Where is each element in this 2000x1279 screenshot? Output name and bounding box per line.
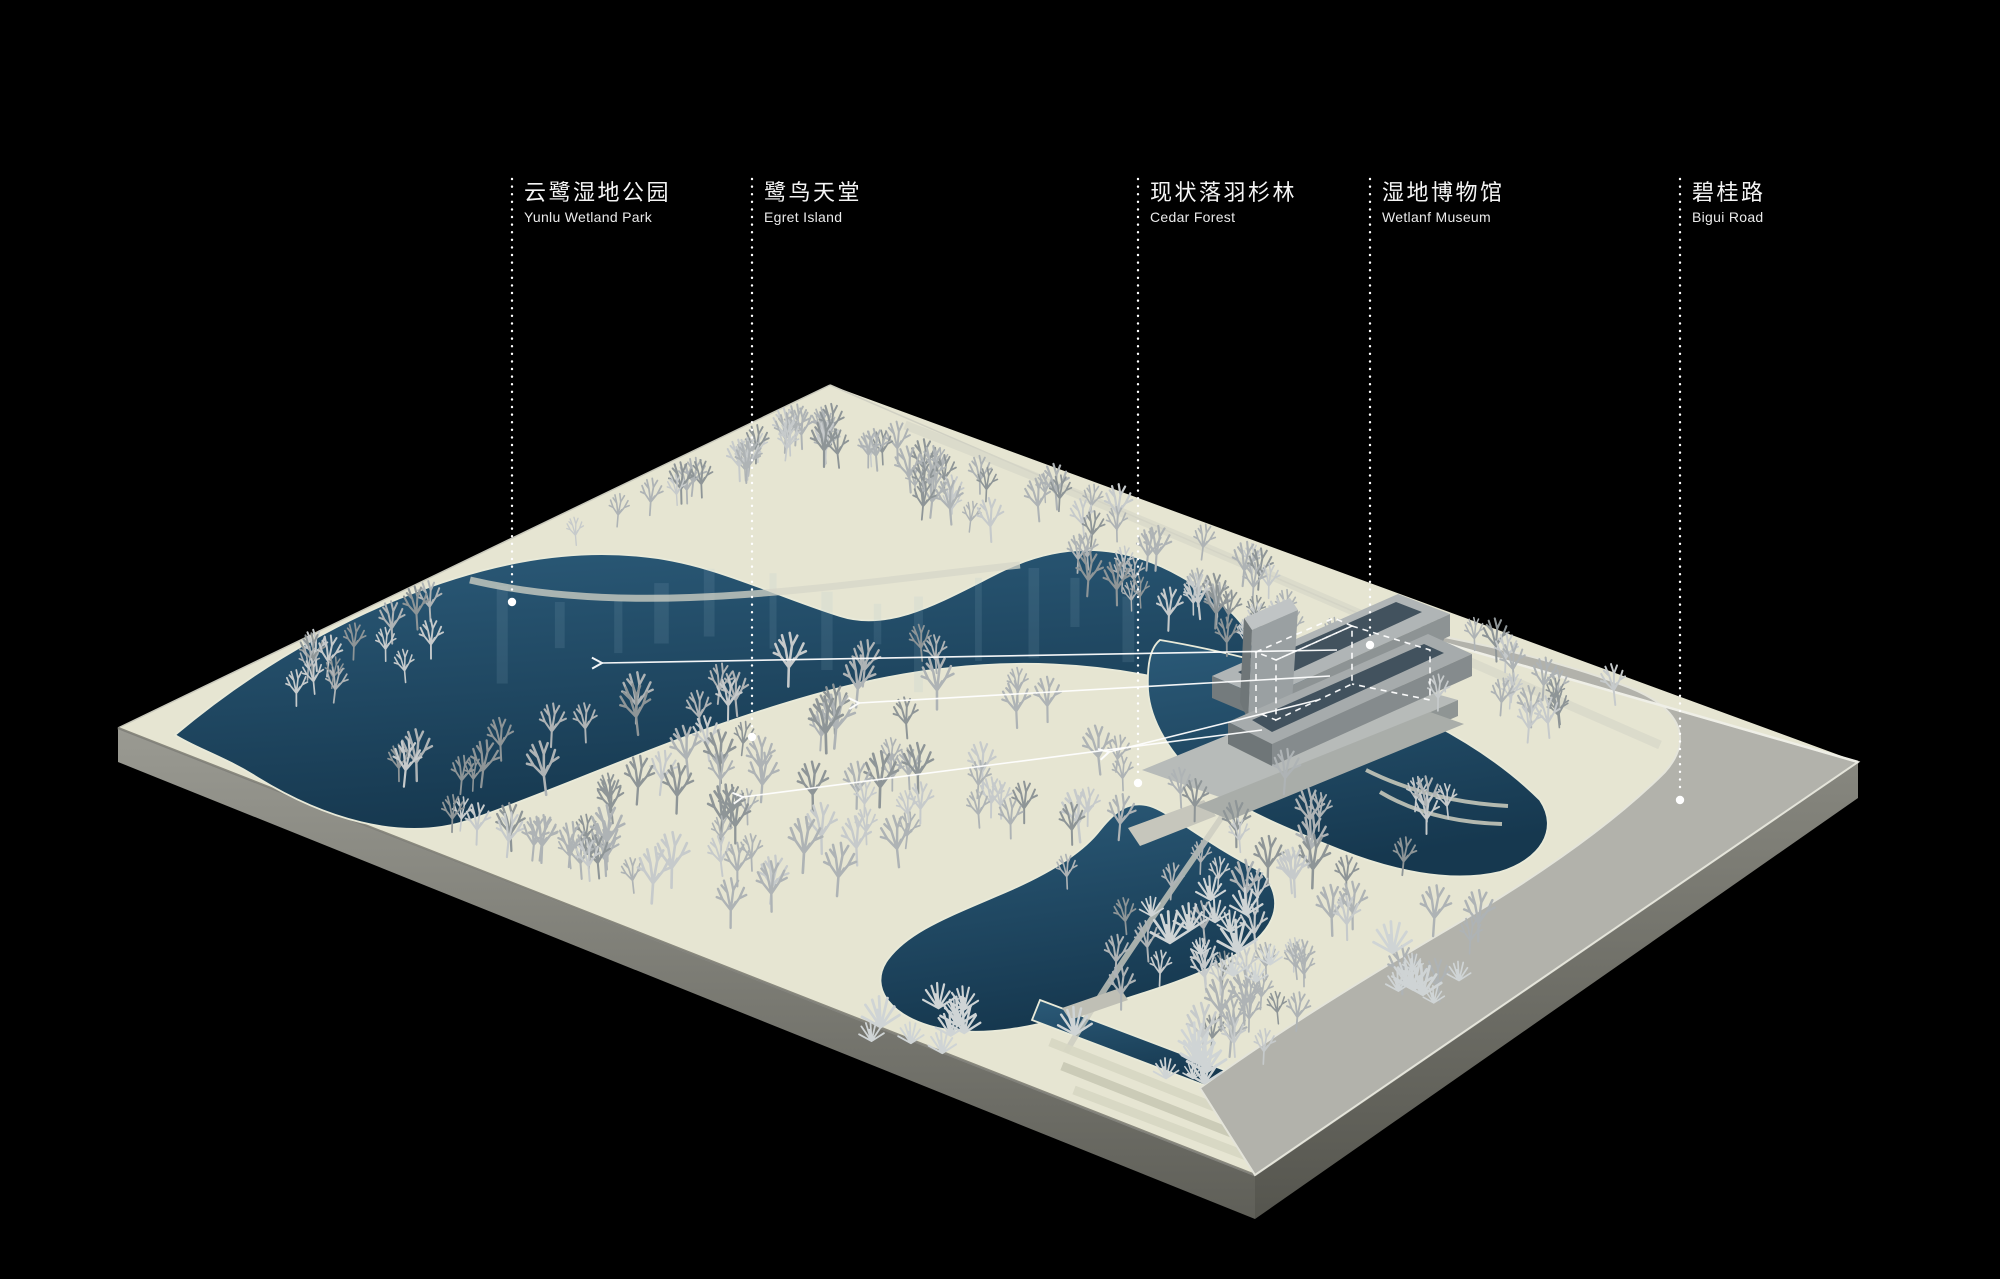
label-cedar-forest: 现状落羽杉林 Cedar Forest bbox=[1150, 181, 1297, 225]
label-egret-island: 鹭鸟天堂 Egret Island bbox=[764, 181, 862, 225]
label-bigui-road: 碧桂路 Bigui Road bbox=[1692, 181, 1766, 225]
label-en: Yunlu Wetland Park bbox=[524, 209, 671, 225]
label-en: Egret Island bbox=[764, 209, 862, 225]
label-en: Bigui Road bbox=[1692, 209, 1766, 225]
label-zh: 现状落羽杉林 bbox=[1150, 181, 1297, 205]
label-zh: 鹭鸟天堂 bbox=[764, 181, 862, 205]
annotated-model-photo: 云鹭湿地公园 Yunlu Wetland Park 鹭鸟天堂 Egret Isl… bbox=[0, 0, 2000, 1279]
label-yunlu-wetland-park: 云鹭湿地公园 Yunlu Wetland Park bbox=[524, 181, 671, 225]
label-zh: 湿地博物馆 bbox=[1382, 181, 1505, 205]
label-wetland-museum: 湿地博物馆 Wetlanf Museum bbox=[1382, 181, 1505, 225]
label-zh: 碧桂路 bbox=[1692, 181, 1766, 205]
label-en: Cedar Forest bbox=[1150, 209, 1297, 225]
label-zh: 云鹭湿地公园 bbox=[524, 181, 671, 205]
label-en: Wetlanf Museum bbox=[1382, 209, 1505, 225]
